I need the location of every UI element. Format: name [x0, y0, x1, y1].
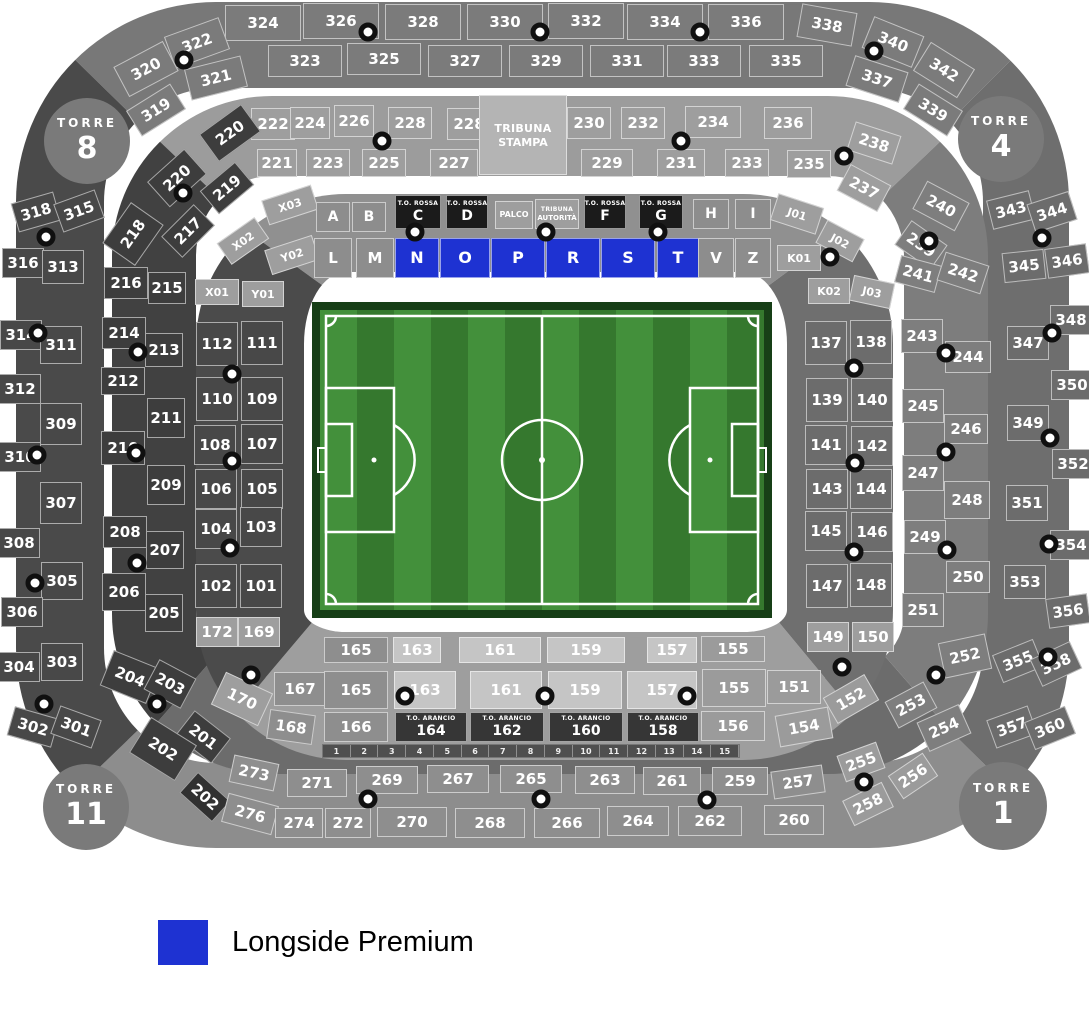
gate-marker-icon [678, 687, 697, 706]
section-label: 112 [201, 337, 232, 352]
section-261[interactable]: 261 [643, 767, 701, 795]
section-label: D [461, 209, 473, 223]
section-227[interactable]: 227 [430, 149, 478, 177]
section-248[interactable]: 248 [944, 481, 990, 519]
section-211[interactable]: 211 [147, 398, 185, 438]
row-number-strip: 123456789101112131415 [322, 744, 740, 758]
section-label: 332 [570, 14, 601, 29]
section-313[interactable]: 313 [42, 250, 84, 284]
section-palco[interactable]: PALCO [495, 201, 533, 229]
section-147[interactable]: 147 [806, 564, 848, 608]
section-225[interactable]: 225 [362, 149, 406, 177]
section-label: 343 [994, 199, 1028, 221]
row-strip-cell: 13 [656, 745, 684, 757]
section-label: 159 [570, 643, 601, 658]
section-label: 154 [787, 717, 820, 737]
gate-marker-icon [937, 443, 956, 462]
gate-marker-icon [649, 223, 668, 242]
section-label: 162 [492, 724, 521, 738]
section-p[interactable]: P [491, 238, 545, 278]
section-353[interactable]: 353 [1004, 565, 1046, 599]
tower-11: TORRE11 [43, 764, 129, 850]
section-102[interactable]: 102 [195, 564, 237, 608]
section-138[interactable]: 138 [850, 320, 892, 364]
gate-marker-icon [35, 695, 54, 714]
section-162[interactable]: T.O. ARANCIO162 [470, 712, 544, 742]
gate-marker-icon [1041, 429, 1060, 448]
section-266[interactable]: 266 [534, 808, 600, 838]
section-k01[interactable]: K01 [777, 245, 821, 271]
section-307[interactable]: 307 [40, 482, 82, 524]
section-356[interactable]: 356 [1045, 593, 1089, 629]
section-label: 248 [951, 493, 982, 508]
tower-name: TORRE [973, 781, 1033, 795]
section-140[interactable]: 140 [851, 378, 893, 422]
section-159[interactable]: 159 [548, 671, 622, 709]
section-t[interactable]: T [657, 238, 699, 278]
section-label: 326 [325, 14, 356, 29]
gate-marker-icon [536, 687, 555, 706]
section-label: 148 [855, 578, 886, 593]
section-label: 147 [811, 579, 842, 594]
section-155[interactable]: 155 [702, 669, 766, 707]
section-251[interactable]: 251 [902, 593, 944, 627]
gate-marker-icon [174, 184, 193, 203]
section-304[interactable]: 304 [0, 652, 40, 682]
section-label: 328 [407, 15, 438, 30]
section-label: Z [748, 251, 759, 266]
gate-marker-icon [1043, 324, 1062, 343]
gate-marker-icon [406, 223, 425, 242]
section-label: 257 [781, 772, 814, 791]
section-151[interactable]: 151 [767, 670, 821, 704]
section-label: S [622, 250, 634, 266]
section-label: 236 [772, 116, 803, 131]
section-stampa[interactable]: TRIBUNASTAMPA [479, 95, 567, 175]
section-label: R [567, 250, 579, 266]
section-213[interactable]: 213 [145, 333, 183, 367]
section-229[interactable]: 229 [581, 149, 633, 177]
section-label: 216 [110, 276, 141, 291]
section-label: 309 [45, 417, 76, 432]
section-label: 338 [810, 15, 843, 35]
section-label: 214 [108, 326, 139, 341]
section-label: 106 [200, 482, 231, 497]
section-222[interactable]: 222 [251, 108, 295, 140]
gate-marker-icon [1040, 535, 1059, 554]
section-163[interactable]: 163 [393, 637, 441, 663]
section-329[interactable]: 329 [509, 45, 583, 77]
tower-number: 8 [77, 131, 98, 166]
section-i[interactable]: I [735, 199, 771, 229]
gate-marker-icon [396, 687, 415, 706]
section-label: K02 [817, 286, 841, 297]
gate-marker-icon [373, 132, 392, 151]
section-209[interactable]: 209 [147, 465, 185, 505]
section-label: 138 [855, 335, 886, 350]
section-label: 316 [7, 256, 38, 271]
section-149[interactable]: 149 [807, 622, 849, 652]
section-label: 209 [150, 478, 181, 493]
section-label: 238 [857, 131, 891, 155]
section-215[interactable]: 215 [148, 272, 186, 304]
gate-marker-icon [29, 324, 48, 343]
section-label: A [328, 210, 339, 224]
section-label: 313 [47, 260, 78, 275]
section-label: 149 [812, 630, 843, 645]
section-164[interactable]: T.O. ARANCIO164 [395, 712, 467, 742]
section-158[interactable]: T.O. ARANCIO158 [627, 712, 699, 742]
section-subtitle: T.O. ARANCIO [638, 716, 687, 722]
section-label: 230 [573, 116, 604, 131]
section-r[interactable]: R [546, 238, 600, 278]
section-155[interactable]: 155 [701, 636, 765, 662]
section-161[interactable]: 161 [470, 671, 542, 709]
section-label: 337 [860, 67, 894, 91]
section-166[interactable]: 166 [324, 712, 388, 742]
section-141[interactable]: 141 [805, 425, 847, 465]
section-k02[interactable]: K02 [808, 278, 850, 304]
section-262[interactable]: 262 [678, 806, 742, 836]
section-336[interactable]: 336 [708, 4, 784, 40]
section-212[interactable]: 212 [101, 367, 145, 395]
section-label: 235 [793, 157, 824, 172]
section-159[interactable]: 159 [547, 637, 625, 663]
section-305[interactable]: 305 [41, 562, 83, 600]
section-label: F [600, 209, 610, 223]
section-label: L [328, 251, 338, 266]
section-346[interactable]: 346 [1044, 243, 1089, 279]
section-350[interactable]: 350 [1051, 370, 1089, 400]
row-strip-cell: 2 [351, 745, 379, 757]
gate-marker-icon [835, 147, 854, 166]
section-label: 152 [834, 685, 869, 714]
section-label: 220 [213, 118, 247, 149]
section-207[interactable]: 207 [146, 531, 184, 569]
section-label: 166 [340, 720, 371, 735]
section-label: 225 [368, 156, 399, 171]
section-228[interactable]: 228 [388, 107, 432, 139]
section-272[interactable]: 272 [325, 808, 371, 838]
pitch-graphic [312, 302, 772, 618]
tower-1: TORRE1 [959, 762, 1047, 850]
section-167[interactable]: 167 [274, 672, 326, 706]
section-subtitle: T.O. ROSSA [447, 201, 488, 207]
section-264[interactable]: 264 [607, 806, 669, 836]
section-156[interactable]: 156 [701, 711, 765, 741]
section-label: 258 [851, 790, 886, 817]
section-165[interactable]: 165 [324, 637, 388, 663]
section-label: 269 [371, 773, 402, 788]
section-328[interactable]: 328 [385, 4, 461, 40]
gate-marker-icon [855, 773, 874, 792]
section-label: 325 [368, 52, 399, 67]
tower-number: 1 [993, 796, 1014, 831]
section-107[interactable]: 107 [241, 424, 283, 464]
section-206[interactable]: 206 [102, 573, 146, 611]
row-strip-cell: 7 [489, 745, 517, 757]
section-label: 155 [717, 642, 748, 657]
section-label: 262 [694, 814, 725, 829]
section-v[interactable]: V [698, 238, 734, 278]
section-label: 143 [811, 482, 842, 497]
section-label: 344 [1035, 200, 1069, 224]
section-139[interactable]: 139 [806, 378, 848, 422]
section-250[interactable]: 250 [946, 561, 990, 593]
section-label: 312 [4, 382, 35, 397]
legend-label: Longside Premium [232, 926, 474, 959]
section-260[interactable]: 260 [764, 805, 824, 835]
row-strip-cell: 15 [711, 745, 739, 757]
section-101[interactable]: 101 [240, 564, 282, 608]
section-205[interactable]: 205 [145, 594, 183, 632]
section-233[interactable]: 233 [725, 149, 769, 177]
section-271[interactable]: 271 [287, 769, 347, 797]
section-309[interactable]: 309 [40, 403, 82, 445]
section-323[interactable]: 323 [268, 45, 342, 77]
section-160[interactable]: T.O. ARANCIO160 [549, 712, 623, 742]
section-234[interactable]: 234 [685, 106, 741, 138]
section-z[interactable]: Z [735, 238, 771, 278]
row-strip-cell: 5 [434, 745, 462, 757]
section-label: J01 [786, 206, 808, 222]
section-label: 247 [907, 466, 938, 481]
section-label: X02 [230, 230, 256, 253]
section-label: 273 [237, 762, 271, 783]
section-label: 144 [855, 482, 886, 497]
section-224[interactable]: 224 [290, 107, 330, 139]
section-label: 274 [283, 816, 314, 831]
section-h[interactable]: H [693, 199, 729, 229]
tower-name: TORRE [56, 782, 116, 796]
section-o[interactable]: O [440, 238, 490, 278]
gate-marker-icon [223, 452, 242, 471]
section-label: 250 [952, 570, 983, 585]
row-strip-cell: 8 [517, 745, 545, 757]
section-245[interactable]: 245 [902, 389, 944, 423]
section-label: 234 [697, 115, 728, 130]
section-312[interactable]: 312 [0, 374, 41, 404]
section-345[interactable]: 345 [1002, 249, 1047, 283]
section-150[interactable]: 150 [852, 622, 894, 652]
gate-marker-icon [221, 539, 240, 558]
section-label: Y02 [279, 246, 305, 264]
section-label: 167 [284, 682, 315, 697]
section-226[interactable]: 226 [334, 105, 374, 137]
section-223[interactable]: 223 [306, 149, 350, 177]
section-label: 329 [530, 54, 561, 69]
gate-marker-icon [223, 365, 242, 384]
row-strip-cell: 6 [462, 745, 490, 757]
row-strip-cell: 12 [628, 745, 656, 757]
section-label: V [710, 251, 722, 266]
section-label: 263 [589, 773, 620, 788]
football-pitch [312, 302, 772, 618]
stadium-seat-map: 3243263283303323343363223203383403423213… [0, 0, 1089, 1032]
section-109[interactable]: 109 [241, 377, 283, 421]
section-label: 207 [149, 543, 180, 558]
section-label: 170 [225, 686, 260, 713]
section-label: 137 [810, 336, 841, 351]
section-106[interactable]: 106 [195, 469, 237, 509]
section-112[interactable]: 112 [196, 322, 238, 366]
section-259[interactable]: 259 [712, 767, 768, 795]
section-subtitle: TRIBUNA [494, 123, 551, 134]
section-label: 349 [1012, 416, 1043, 431]
section-label: 141 [810, 438, 841, 453]
section-335[interactable]: 335 [749, 45, 823, 77]
section-232[interactable]: 232 [621, 107, 665, 139]
section-324[interactable]: 324 [225, 5, 301, 41]
gate-marker-icon [127, 444, 146, 463]
section-316[interactable]: 316 [2, 248, 44, 278]
section-label: M [368, 251, 383, 266]
section-label: 160 [571, 724, 600, 738]
section-352[interactable]: 352 [1052, 449, 1089, 479]
section-332[interactable]: 332 [548, 3, 624, 39]
section-label: 265 [515, 772, 546, 787]
section-143[interactable]: 143 [806, 469, 848, 509]
section-label: 246 [950, 422, 981, 437]
section-231[interactable]: 231 [657, 149, 705, 177]
section-label: 301 [59, 715, 94, 740]
section-label: 321 [199, 67, 233, 89]
section-235[interactable]: 235 [787, 150, 831, 178]
section-label: 232 [627, 116, 658, 131]
section-274[interactable]: 274 [275, 808, 323, 838]
row-strip-cell: 4 [406, 745, 434, 757]
section-267[interactable]: 267 [427, 765, 489, 793]
row-strip-cell: 10 [573, 745, 601, 757]
section-105[interactable]: 105 [241, 469, 283, 509]
section-161[interactable]: 161 [459, 637, 541, 663]
section-148[interactable]: 148 [850, 563, 892, 607]
section-label: 307 [45, 496, 76, 511]
tower-name: TORRE [971, 114, 1031, 128]
section-label: 345 [1008, 257, 1041, 275]
section-a[interactable]: A [316, 202, 350, 232]
row-strip-cell: 3 [378, 745, 406, 757]
section-n[interactable]: N [395, 238, 439, 278]
section-165[interactable]: 165 [324, 671, 388, 709]
section-351[interactable]: 351 [1006, 485, 1048, 521]
section-331[interactable]: 331 [590, 45, 664, 77]
section-265[interactable]: 265 [500, 765, 562, 793]
section-label: 211 [150, 411, 181, 426]
section-137[interactable]: 137 [805, 321, 847, 365]
section-label: 260 [778, 813, 809, 828]
section-subtitle: T.O. ROSSA [398, 201, 439, 207]
section-label: 105 [246, 482, 277, 497]
section-236[interactable]: 236 [764, 107, 812, 139]
section-268[interactable]: 268 [455, 808, 525, 838]
section-l[interactable]: L [314, 238, 352, 278]
section-subtitle: T.O. ARANCIO [482, 716, 531, 722]
section-label: 157 [646, 683, 677, 698]
section-169[interactable]: 169 [238, 617, 280, 647]
section-label: 161 [484, 643, 515, 658]
section-246[interactable]: 246 [944, 414, 988, 444]
section-270[interactable]: 270 [377, 807, 447, 837]
section-221[interactable]: 221 [257, 149, 297, 177]
section-172[interactable]: 172 [196, 617, 238, 647]
section-247[interactable]: 247 [902, 455, 944, 491]
section-208[interactable]: 208 [103, 516, 147, 548]
section-label: 206 [108, 585, 139, 600]
gate-marker-icon [845, 543, 864, 562]
section-103[interactable]: 103 [240, 507, 282, 547]
section-157[interactable]: 157 [647, 637, 697, 663]
section-subtitle: T.O. ARANCIO [561, 716, 610, 722]
section-label: 254 [927, 715, 962, 741]
section-label: 306 [6, 605, 37, 620]
section-label: 223 [312, 156, 343, 171]
section-label: 202 [146, 734, 181, 763]
section-s[interactable]: S [601, 238, 655, 278]
section-d[interactable]: T.O. ROSSAD [446, 195, 488, 229]
section-label: 155 [718, 681, 749, 696]
section-label: 156 [717, 719, 748, 734]
section-label: 145 [810, 524, 841, 539]
section-333[interactable]: 333 [667, 45, 741, 77]
section-144[interactable]: 144 [850, 469, 892, 509]
gate-marker-icon [821, 248, 840, 267]
section-label: 336 [730, 15, 761, 30]
section-label: 227 [438, 156, 469, 171]
section-111[interactable]: 111 [241, 321, 283, 365]
section-label: 351 [1011, 496, 1042, 511]
section-label: X01 [205, 287, 229, 298]
section-label: 266 [551, 816, 582, 831]
tower-name: TORRE [57, 116, 117, 130]
legend: Longside Premium [158, 920, 474, 965]
section-label: 342 [927, 55, 962, 84]
gate-marker-icon [691, 23, 710, 42]
section-216[interactable]: 216 [104, 267, 148, 299]
section-168[interactable]: 168 [266, 709, 316, 745]
section-325[interactable]: 325 [347, 43, 421, 75]
section-263[interactable]: 263 [575, 766, 635, 794]
section-label: 348 [1055, 313, 1086, 328]
section-x01[interactable]: X01 [195, 279, 239, 305]
gate-marker-icon [129, 343, 148, 362]
gate-marker-icon [1039, 648, 1058, 667]
section-label: T [673, 250, 684, 266]
section-y01[interactable]: Y01 [242, 281, 284, 307]
section-230[interactable]: 230 [567, 107, 611, 139]
section-label: 218 [118, 217, 148, 251]
section-306[interactable]: 306 [1, 597, 43, 627]
section-b[interactable]: B [352, 202, 386, 232]
section-145[interactable]: 145 [805, 511, 847, 551]
section-327[interactable]: 327 [428, 45, 502, 77]
section-303[interactable]: 303 [41, 643, 83, 681]
gate-marker-icon [698, 791, 717, 810]
section-110[interactable]: 110 [196, 377, 238, 421]
gate-marker-icon [148, 695, 167, 714]
section-m[interactable]: M [356, 238, 394, 278]
section-label: 350 [1056, 378, 1087, 393]
section-label: B [364, 210, 375, 224]
section-label: 226 [338, 114, 369, 129]
section-label: 245 [907, 399, 938, 414]
section-label: 110 [201, 392, 232, 407]
section-label: C [413, 209, 423, 223]
section-label: 172 [201, 625, 232, 640]
section-f[interactable]: T.O. ROSSAF [584, 195, 626, 229]
section-308[interactable]: 308 [0, 528, 40, 558]
section-label: J03 [861, 285, 882, 300]
